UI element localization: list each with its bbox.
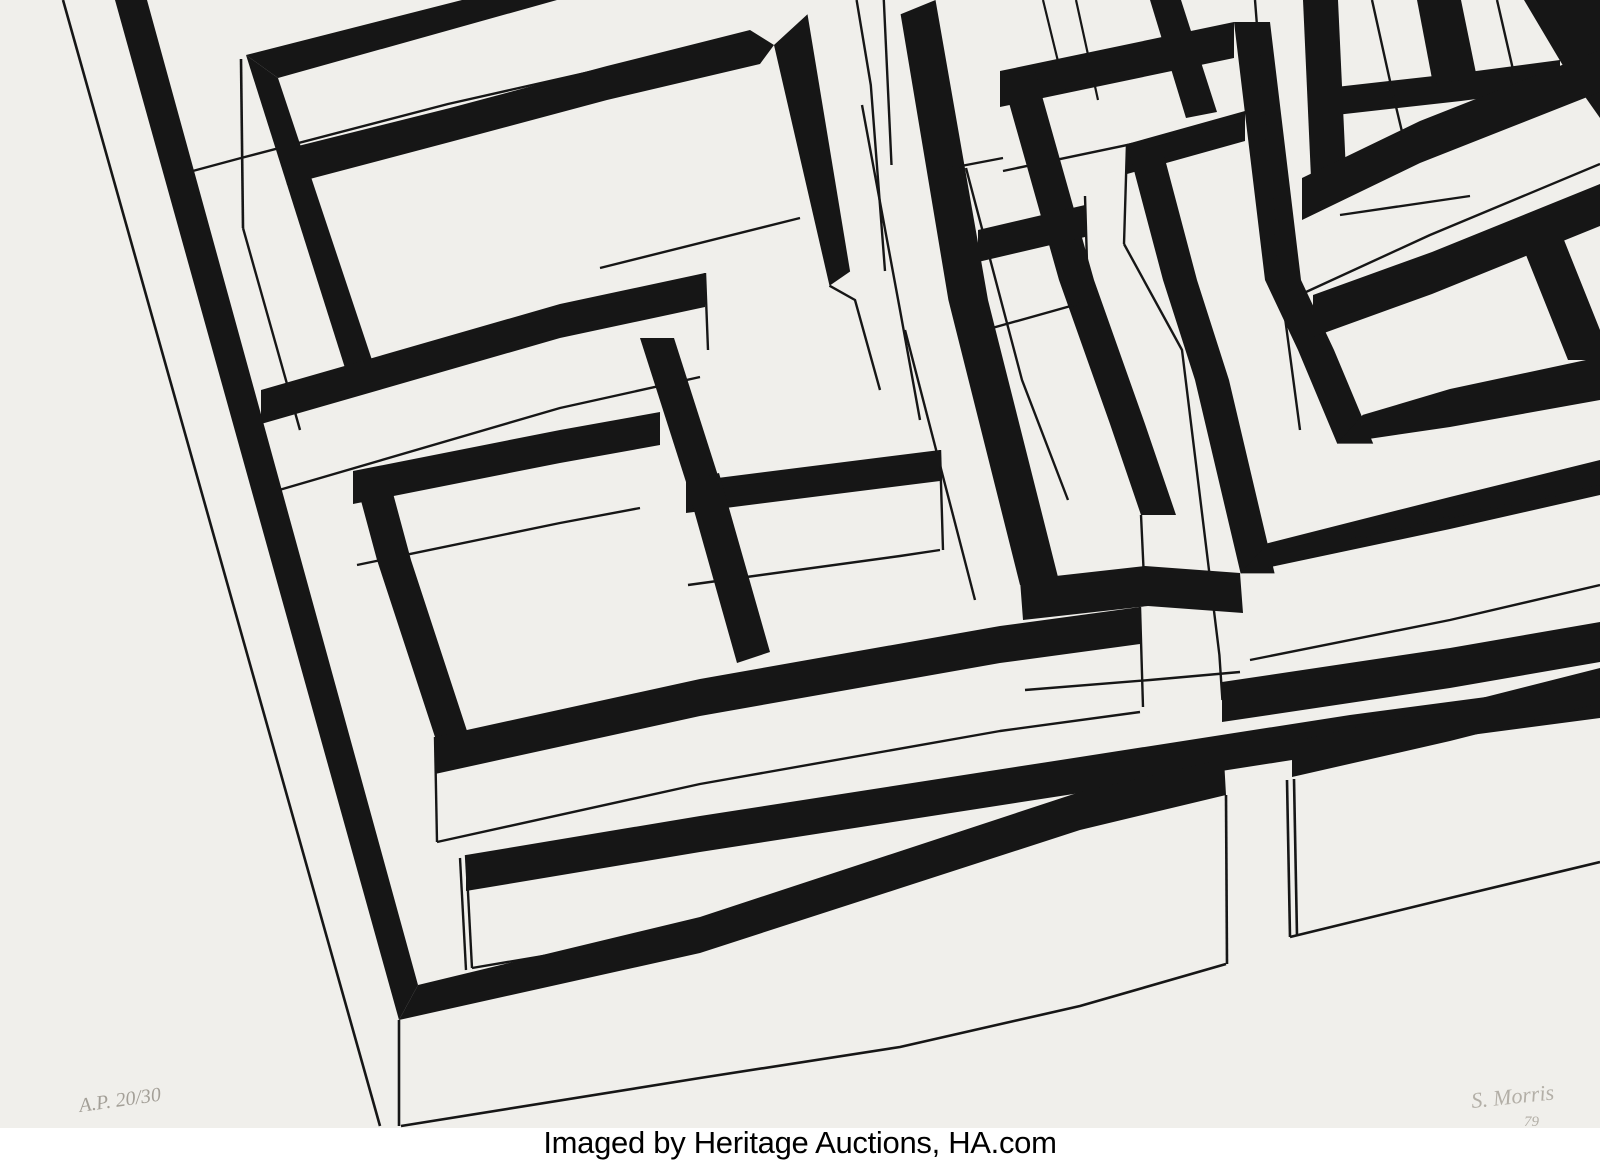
svg-text:Imaged by Heritage Auctions, H: Imaged by Heritage Auctions, HA.com	[543, 1125, 1056, 1160]
svg-text:79: 79	[1524, 1114, 1540, 1130]
